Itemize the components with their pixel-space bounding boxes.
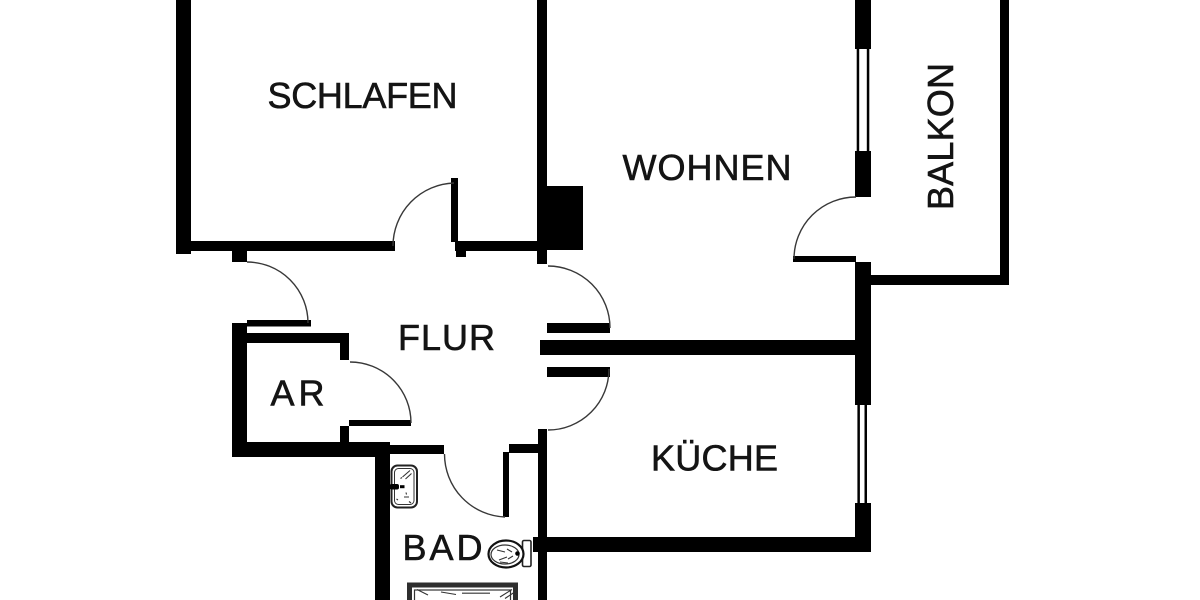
- svg-text:BALKON: BALKON: [920, 63, 961, 210]
- svg-text:SCHLAFEN: SCHLAFEN: [268, 75, 458, 116]
- svg-text:WOHNEN: WOHNEN: [623, 147, 792, 188]
- svg-text:BAD: BAD: [403, 527, 483, 568]
- svg-text:KÜCHE: KÜCHE: [651, 438, 778, 479]
- svg-text:FLUR: FLUR: [398, 317, 495, 358]
